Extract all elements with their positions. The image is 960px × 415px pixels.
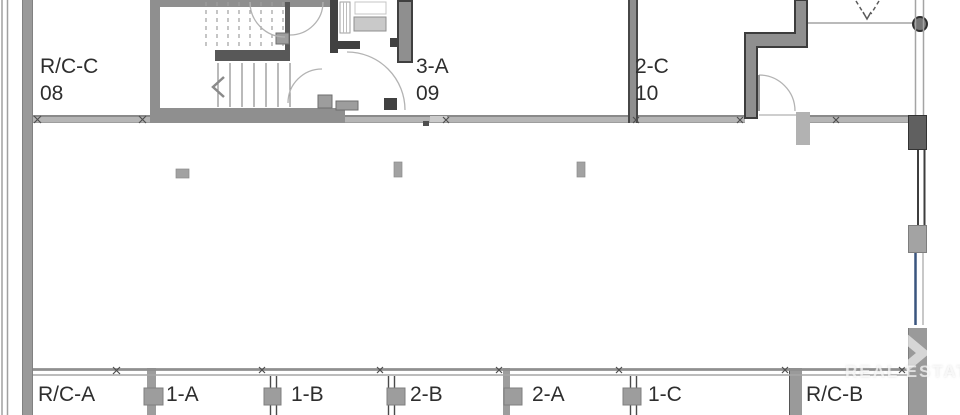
unit-label-rcc: R/C-C 08: [40, 53, 98, 107]
door-swing-arc-stair-bottom: [288, 69, 322, 103]
unit-name: 3-A: [416, 53, 449, 80]
unit-label-rca: R/C-A: [38, 384, 95, 406]
column-markers: [176, 162, 585, 178]
stair-treads: [218, 63, 290, 107]
door-swing-arc-stair-top: [250, 2, 285, 37]
unit-label-1a: 1-A: [166, 384, 199, 406]
direction-dashed-arrow: [856, 1, 879, 19]
divider-column-squares: [144, 388, 641, 405]
unit-number: 10: [635, 80, 669, 107]
unit-label-2c: 2-C 10: [635, 53, 669, 107]
door-hinge-block: [276, 33, 289, 44]
plan-linework: [0, 0, 960, 415]
unit-label-1c: 1-C: [648, 384, 682, 406]
bottom-window-band: [33, 370, 908, 376]
unit-label-3a: 3-A 09: [416, 53, 449, 107]
joint-marks: [34, 116, 905, 374]
floor-plan: R/C-C 08 3-A 09 2-C 10 R/C-A 1-A 1-B 2-B…: [0, 0, 960, 415]
unit-name: 2-C: [635, 53, 669, 80]
unit-number: 09: [416, 80, 449, 107]
window-right-mid: [918, 150, 925, 225]
unit-label-2a: 2-A: [532, 384, 565, 406]
door-swing-arc-upper-right: [290, 2, 323, 35]
door-leaf-block: [318, 95, 332, 108]
door-leaf-vestibule: [336, 101, 358, 110]
unit-label-1b: 1-B: [291, 384, 324, 406]
door-swing-arc-2c: [759, 75, 795, 111]
unit-number: 08: [40, 80, 98, 107]
stair-landing: [215, 50, 290, 61]
unit-label-rcb: R/C-B: [806, 384, 863, 406]
unit-label-2b: 2-B: [410, 384, 443, 406]
unit-name: R/C-C: [40, 53, 98, 80]
stair-treads-dashed: [206, 2, 283, 46]
closet-fixture: [340, 2, 386, 33]
wall-zigzag-2c: [745, 0, 807, 118]
bottom-dividers: [271, 376, 637, 415]
outer-boundary-lines: [2, 0, 8, 415]
